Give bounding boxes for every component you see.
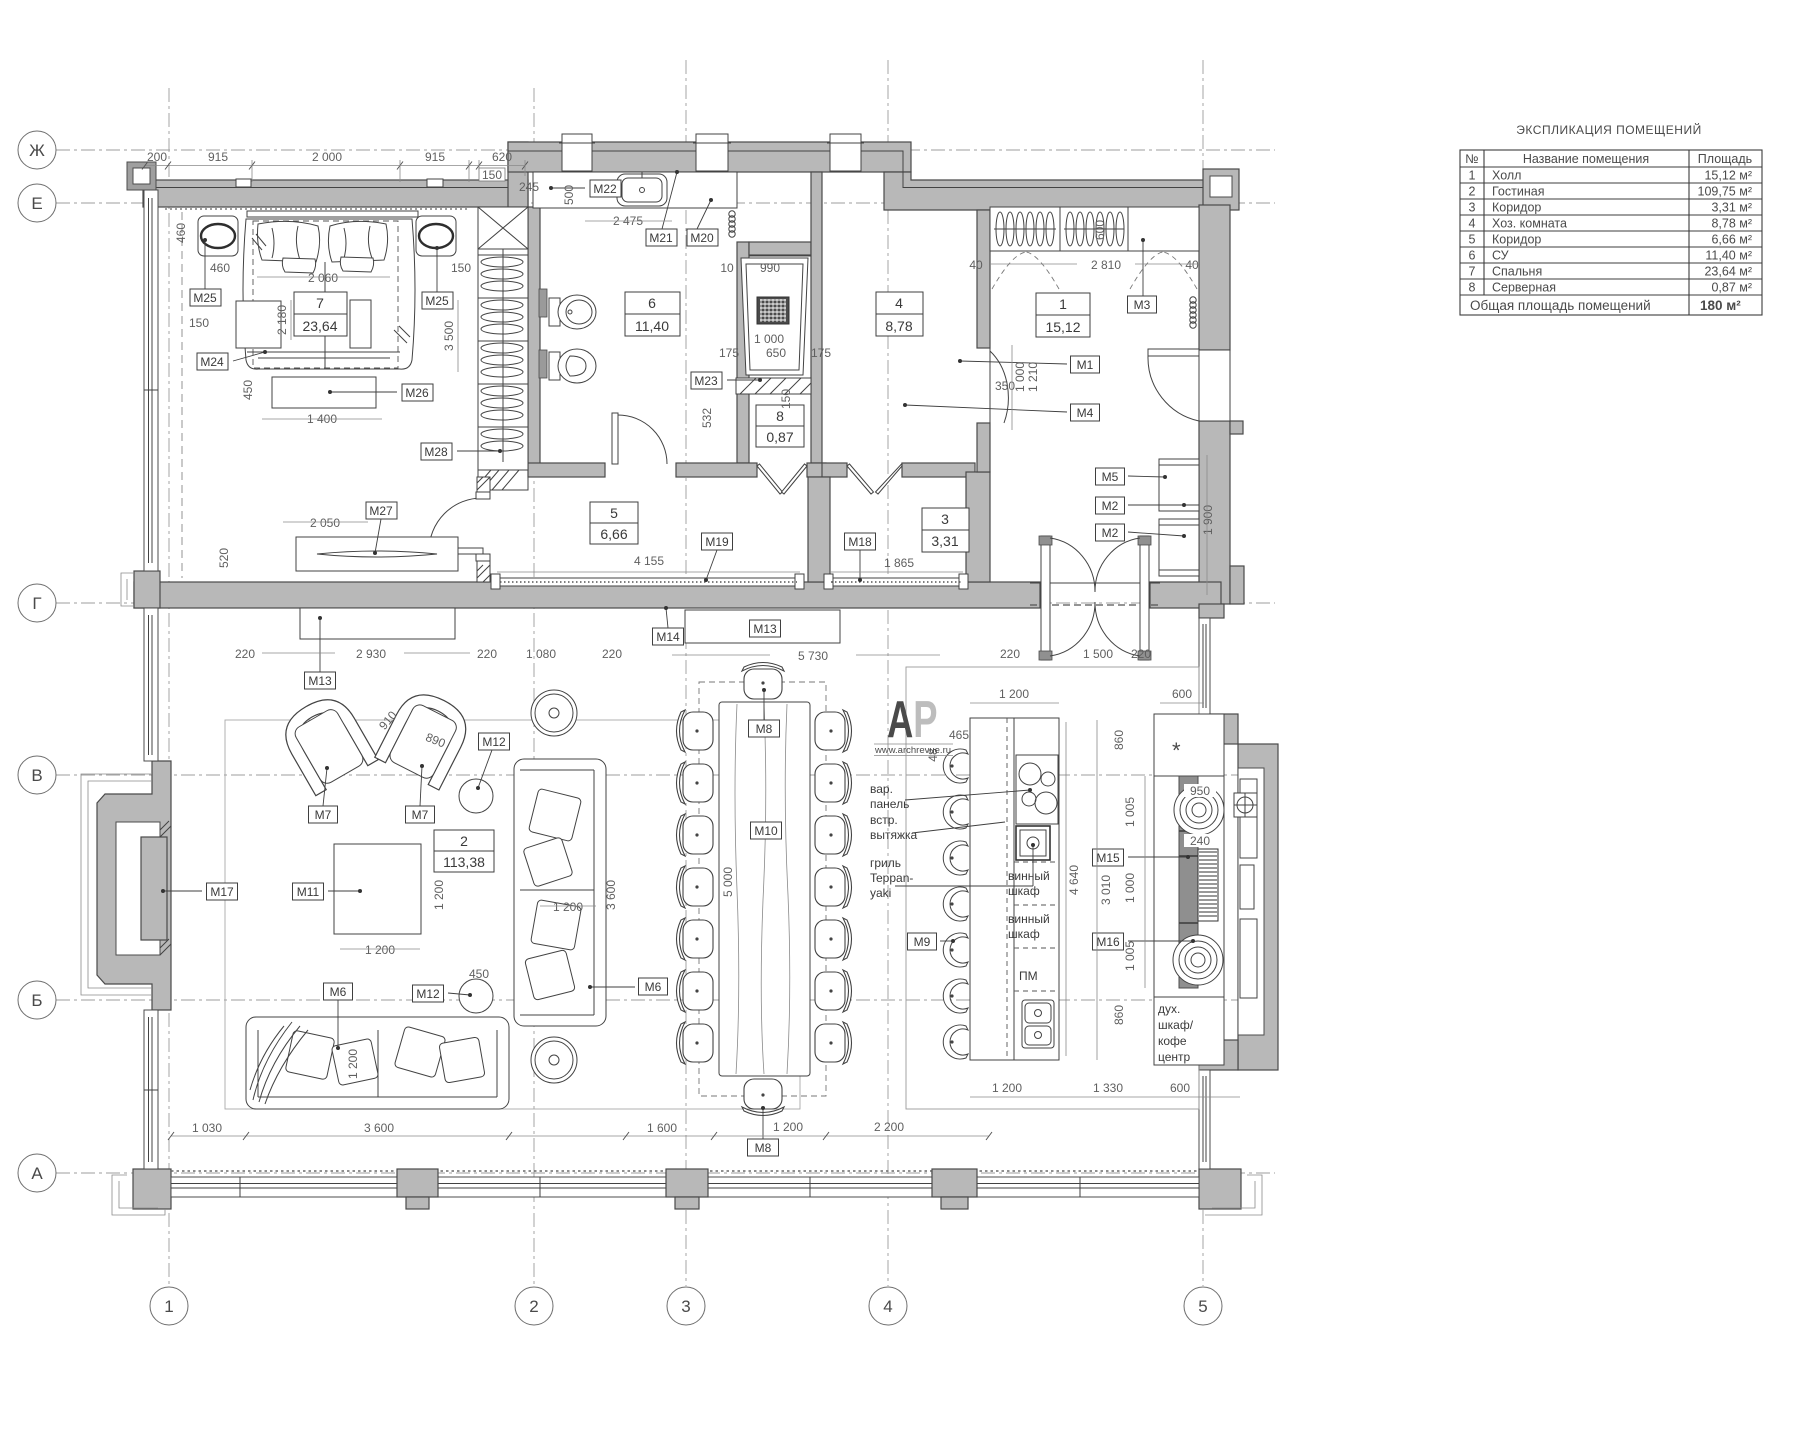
- svg-text:2 180: 2 180: [275, 305, 289, 335]
- svg-text:1 210: 1 210: [1026, 362, 1040, 392]
- svg-text:5: 5: [1469, 233, 1476, 247]
- svg-text:А: А: [31, 1164, 43, 1183]
- svg-text:11,40: 11,40: [635, 318, 669, 334]
- svg-text:вытяжка: вытяжка: [870, 828, 918, 842]
- svg-text:АР: АР: [887, 689, 938, 748]
- svg-text:990: 990: [760, 261, 780, 275]
- svg-text:M2: M2: [1102, 499, 1119, 513]
- svg-text:*: *: [1172, 738, 1181, 763]
- svg-text:1 000: 1 000: [1013, 362, 1027, 392]
- svg-text:4 640: 4 640: [1067, 865, 1081, 895]
- svg-text:175: 175: [719, 346, 739, 360]
- svg-text:Общая площадь помещений: Общая площадь помещений: [1470, 298, 1651, 313]
- svg-text:220: 220: [1000, 647, 1020, 661]
- svg-text:8: 8: [776, 408, 784, 424]
- svg-text:200: 200: [147, 150, 167, 164]
- svg-text:M6: M6: [645, 980, 662, 994]
- svg-text:M12: M12: [416, 987, 440, 1001]
- svg-text:1 865: 1 865: [884, 556, 914, 570]
- svg-text:1 330: 1 330: [1093, 1081, 1123, 1095]
- svg-text:1 200: 1 200: [992, 1081, 1022, 1095]
- svg-text:3: 3: [681, 1297, 690, 1316]
- svg-text:Название помещения: Название помещения: [1523, 152, 1649, 166]
- svg-text:520: 520: [217, 548, 231, 568]
- svg-text:220: 220: [602, 647, 622, 661]
- svg-text:1 500: 1 500: [1083, 647, 1113, 661]
- svg-text:M16: M16: [1096, 935, 1120, 949]
- svg-text:M4: M4: [1077, 406, 1094, 420]
- svg-text:3,31: 3,31: [931, 533, 958, 549]
- svg-text:1 600: 1 600: [647, 1121, 677, 1135]
- svg-text:В: В: [31, 766, 42, 785]
- svg-text:8,78: 8,78: [885, 318, 912, 334]
- svg-text:ЭКСПЛИКАЦИЯ ПОМЕЩЕНИЙ: ЭКСПЛИКАЦИЯ ПОМЕЩЕНИЙ: [1516, 122, 1701, 137]
- svg-text:2: 2: [1469, 185, 1476, 199]
- svg-text:M19: M19: [705, 535, 729, 549]
- svg-text:220: 220: [477, 647, 497, 661]
- svg-text:620: 620: [492, 150, 512, 164]
- svg-text:дух.: дух.: [1158, 1002, 1180, 1016]
- svg-text:3: 3: [1469, 201, 1476, 215]
- svg-text:1: 1: [1059, 296, 1067, 312]
- svg-text:650: 650: [766, 346, 786, 360]
- svg-text:3 600: 3 600: [364, 1121, 394, 1135]
- svg-text:5: 5: [1198, 1297, 1207, 1316]
- svg-text:175: 175: [811, 346, 831, 360]
- svg-text:панель: панель: [870, 797, 909, 811]
- svg-text:Teppan-: Teppan-: [870, 871, 913, 885]
- svg-text:M25: M25: [425, 294, 449, 308]
- svg-text:вар.: вар.: [870, 782, 893, 796]
- svg-text:220: 220: [235, 647, 255, 661]
- svg-text:5: 5: [610, 505, 618, 521]
- svg-text:3 500: 3 500: [442, 321, 456, 351]
- svg-text:M13: M13: [308, 674, 332, 688]
- svg-text:шкаф: шкаф: [1008, 884, 1040, 898]
- svg-text:240: 240: [1190, 834, 1210, 848]
- svg-text:2: 2: [529, 1297, 538, 1316]
- svg-text:шкаф: шкаф: [1008, 927, 1040, 941]
- svg-text:шкаф/: шкаф/: [1158, 1018, 1194, 1032]
- svg-text:6: 6: [648, 295, 656, 311]
- svg-text:M12: M12: [482, 735, 506, 749]
- svg-text:6: 6: [1469, 249, 1476, 263]
- svg-text:№: №: [1465, 152, 1478, 166]
- svg-text:M8: M8: [755, 1141, 772, 1155]
- svg-text:150: 150: [482, 168, 502, 182]
- svg-text:Коридор: Коридор: [1492, 201, 1541, 215]
- svg-text:2 050: 2 050: [310, 516, 340, 530]
- svg-text:860: 860: [1112, 1005, 1126, 1025]
- svg-text:460: 460: [174, 223, 188, 243]
- svg-text:3,31 м²: 3,31 м²: [1711, 201, 1752, 215]
- svg-text:245: 245: [519, 180, 539, 194]
- svg-text:4: 4: [895, 295, 903, 311]
- svg-text:950: 950: [1190, 784, 1210, 798]
- svg-text:150: 150: [451, 261, 471, 275]
- svg-text:2 200: 2 200: [874, 1120, 904, 1134]
- svg-text:600: 600: [1172, 687, 1192, 701]
- svg-text:180 м²: 180 м²: [1700, 298, 1741, 313]
- svg-text:M7: M7: [315, 808, 332, 822]
- svg-text:915: 915: [425, 150, 445, 164]
- svg-text:10: 10: [720, 261, 734, 275]
- svg-text:1: 1: [164, 1297, 173, 1316]
- svg-text:Серверная: Серверная: [1492, 281, 1556, 295]
- svg-text:1 200: 1 200: [346, 1049, 360, 1079]
- svg-text:Спальня: Спальня: [1492, 265, 1542, 279]
- svg-text:0,87 м²: 0,87 м²: [1711, 281, 1752, 295]
- svg-text:0,87: 0,87: [766, 429, 793, 445]
- svg-text:2 930: 2 930: [356, 647, 386, 661]
- svg-text:1 200: 1 200: [553, 900, 583, 914]
- svg-text:гриль: гриль: [870, 856, 901, 870]
- svg-text:ПМ: ПМ: [1019, 969, 1038, 983]
- svg-text:11,40 м²: 11,40 м²: [1705, 249, 1752, 263]
- svg-text:Холл: Холл: [1492, 169, 1521, 183]
- svg-text:1 000: 1 000: [1123, 873, 1137, 903]
- svg-text:M24: M24: [200, 355, 224, 369]
- svg-text:1 200: 1 200: [432, 880, 446, 910]
- svg-text:600: 600: [1170, 1081, 1190, 1095]
- svg-text:4 155: 4 155: [634, 554, 664, 568]
- svg-text:23,64 м²: 23,64 м²: [1704, 265, 1752, 279]
- svg-text:1 080: 1 080: [526, 647, 556, 661]
- svg-text:M25: M25: [193, 291, 217, 305]
- svg-text:M27: M27: [369, 504, 393, 518]
- svg-text:M6: M6: [330, 985, 347, 999]
- svg-text:встр.: встр.: [870, 813, 898, 827]
- svg-text:5 730: 5 730: [798, 649, 828, 663]
- svg-text:M15: M15: [1096, 851, 1120, 865]
- svg-text:1 005: 1 005: [1123, 797, 1137, 827]
- svg-text:1 000: 1 000: [754, 332, 784, 346]
- svg-text:M21: M21: [649, 231, 673, 245]
- svg-text:4: 4: [883, 1297, 892, 1316]
- svg-text:M3: M3: [1134, 298, 1151, 312]
- svg-text:23,64: 23,64: [302, 318, 337, 334]
- svg-text:450: 450: [469, 967, 489, 981]
- svg-text:532: 532: [700, 408, 714, 428]
- svg-text:3: 3: [941, 511, 949, 527]
- svg-text:Хоз. комната: Хоз. комната: [1492, 217, 1567, 231]
- svg-text:M8: M8: [756, 722, 773, 736]
- svg-text:1 200: 1 200: [999, 687, 1029, 701]
- svg-text:M23: M23: [694, 374, 718, 388]
- svg-text:7: 7: [316, 295, 324, 311]
- svg-text:M1: M1: [1077, 358, 1094, 372]
- svg-text:СУ: СУ: [1492, 249, 1509, 263]
- svg-text:500: 500: [562, 185, 576, 205]
- svg-text:3 600: 3 600: [604, 880, 618, 910]
- svg-text:8: 8: [1469, 281, 1476, 295]
- svg-text:Гостиная: Гостиная: [1492, 185, 1544, 199]
- svg-text:кофе: кофе: [1158, 1034, 1187, 1048]
- svg-text:1 200: 1 200: [773, 1120, 803, 1134]
- svg-text:460: 460: [210, 261, 230, 275]
- svg-text:M14: M14: [656, 630, 680, 644]
- svg-text:M26: M26: [405, 386, 429, 400]
- svg-text:860: 860: [1112, 730, 1126, 750]
- svg-text:M2: M2: [1102, 526, 1119, 540]
- svg-text:450: 450: [241, 380, 255, 400]
- svg-text:M28: M28: [424, 445, 448, 459]
- svg-text:M17: M17: [210, 885, 234, 899]
- svg-text:2 060: 2 060: [308, 271, 338, 285]
- svg-text:винный: винный: [1008, 869, 1050, 883]
- svg-text:M7: M7: [412, 808, 429, 822]
- svg-text:6,66 м²: 6,66 м²: [1711, 233, 1752, 247]
- svg-text:1 200: 1 200: [365, 943, 395, 957]
- svg-text:Площадь: Площадь: [1698, 152, 1752, 166]
- svg-text:2 000: 2 000: [312, 150, 342, 164]
- svg-text:M20: M20: [690, 231, 714, 245]
- svg-text:Коридор: Коридор: [1492, 233, 1541, 247]
- svg-text:15,12 м²: 15,12 м²: [1704, 169, 1752, 183]
- svg-text:40: 40: [969, 258, 983, 272]
- svg-text:M5: M5: [1102, 470, 1119, 484]
- svg-text:915: 915: [208, 150, 228, 164]
- svg-text:M18: M18: [848, 535, 872, 549]
- svg-text:1 030: 1 030: [192, 1121, 222, 1135]
- svg-text:Б: Б: [31, 991, 42, 1010]
- svg-text:7: 7: [1469, 265, 1476, 279]
- svg-text:465: 465: [949, 728, 969, 742]
- svg-text:8,78 м²: 8,78 м²: [1711, 217, 1752, 231]
- svg-text:центр: центр: [1158, 1050, 1191, 1064]
- svg-text:220: 220: [1131, 647, 1151, 661]
- svg-text:M9: M9: [914, 935, 931, 949]
- svg-text:40: 40: [1185, 258, 1199, 272]
- svg-text:Ж: Ж: [29, 141, 45, 160]
- svg-text:винный: винный: [1008, 912, 1050, 926]
- svg-text:1 900: 1 900: [1201, 505, 1215, 535]
- svg-text:3 010: 3 010: [1099, 875, 1113, 905]
- svg-text:109,75 м²: 109,75 м²: [1698, 185, 1752, 199]
- svg-text:M10: M10: [754, 824, 778, 838]
- svg-text:M13: M13: [753, 622, 777, 636]
- svg-text:15,12: 15,12: [1045, 319, 1080, 335]
- svg-text:Г: Г: [32, 594, 41, 613]
- svg-text:4: 4: [1469, 217, 1476, 231]
- svg-text:yaki: yaki: [870, 886, 891, 900]
- svg-text:5 000: 5 000: [721, 867, 735, 897]
- svg-text:150: 150: [779, 389, 793, 409]
- svg-text:2: 2: [460, 833, 468, 849]
- svg-text:M11: M11: [297, 885, 320, 899]
- svg-text:1: 1: [1469, 169, 1476, 183]
- svg-text:2 810: 2 810: [1091, 258, 1121, 272]
- svg-text:Е: Е: [31, 194, 42, 213]
- svg-text:6,66: 6,66: [600, 526, 627, 542]
- svg-text:1 005: 1 005: [1123, 941, 1137, 971]
- svg-text:600: 600: [1093, 220, 1107, 240]
- svg-text:www.archrevue.ru: www.archrevue.ru: [874, 745, 951, 756]
- svg-text:113,38: 113,38: [443, 854, 485, 870]
- svg-text:M22: M22: [593, 182, 617, 196]
- svg-text:150: 150: [189, 316, 209, 330]
